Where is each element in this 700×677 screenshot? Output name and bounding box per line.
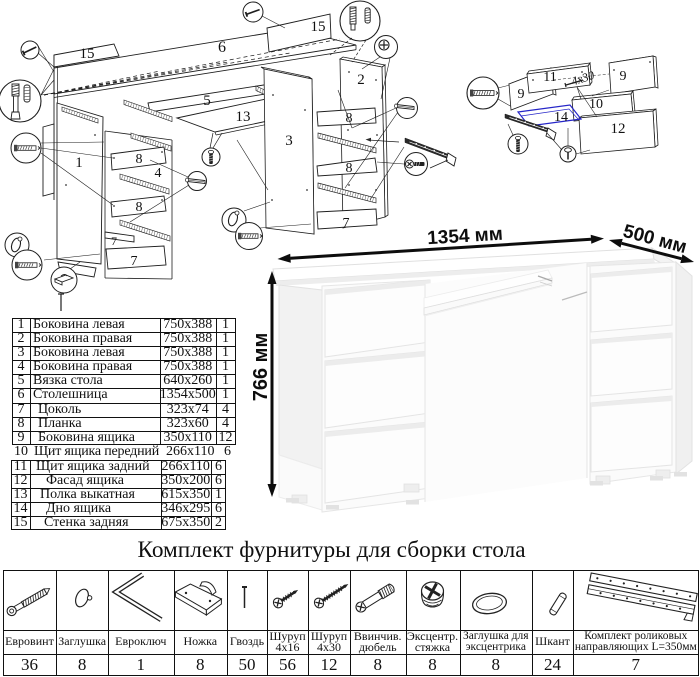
- svg-text:4: 4: [155, 166, 162, 181]
- svg-text:8: 8: [136, 200, 143, 215]
- svg-text:2: 2: [357, 72, 365, 88]
- svg-text:9: 9: [518, 87, 525, 102]
- svg-text:6: 6: [218, 39, 226, 56]
- svg-text:8: 8: [346, 161, 353, 176]
- svg-text:9: 9: [620, 69, 627, 84]
- svg-text:3: 3: [285, 133, 293, 149]
- svg-text:11: 11: [543, 70, 556, 85]
- svg-text:8: 8: [136, 152, 143, 167]
- svg-text:7: 7: [131, 254, 138, 269]
- svg-text:1: 1: [75, 155, 83, 171]
- svg-text:10: 10: [589, 97, 603, 112]
- svg-text:13: 13: [236, 109, 251, 125]
- svg-text:7: 7: [343, 216, 350, 231]
- svg-text:5: 5: [203, 93, 211, 109]
- svg-text:15: 15: [80, 46, 95, 62]
- svg-text:7: 7: [111, 234, 117, 248]
- svg-text:14: 14: [554, 110, 568, 125]
- svg-text:15: 15: [311, 19, 326, 35]
- svg-text:766 мм: 766 мм: [250, 333, 272, 402]
- svg-text:12: 12: [611, 121, 626, 137]
